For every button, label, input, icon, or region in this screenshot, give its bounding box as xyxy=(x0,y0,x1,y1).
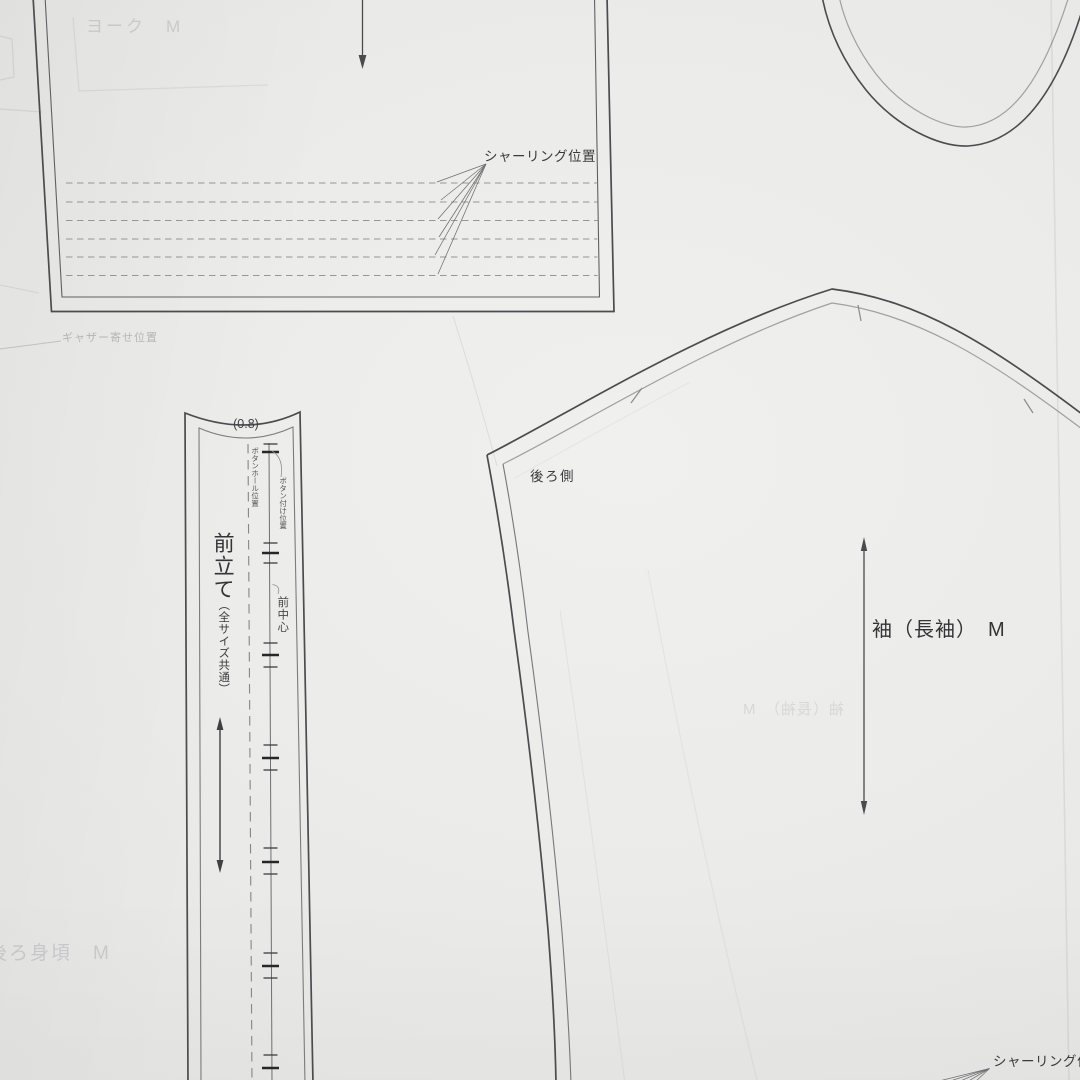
bleed-back-bodice-label: 後ろ身頃 M xyxy=(0,943,111,965)
sleeve-notch-marks xyxy=(631,305,1033,413)
neckline-piece xyxy=(822,0,1080,146)
placket-inner-seam-line xyxy=(199,427,305,1080)
buttonhole-dashed-line xyxy=(248,444,252,1080)
center-front-leader xyxy=(273,585,279,595)
sleeve-cap-inner-seam-line xyxy=(503,303,1080,464)
shirring-dashed-lines xyxy=(66,183,598,276)
neckline-outer-cut-line xyxy=(822,0,1080,146)
button-label-leader xyxy=(272,451,282,477)
shirring-leader-lines-bottom xyxy=(935,1069,990,1080)
pattern-sheet: シャーリング位置 (0.8) 前立て （全サイズ共通） 前中心 ボタンホール位置… xyxy=(0,0,1080,1080)
sleeve-piece-name: 袖（長袖） M xyxy=(872,619,1006,642)
shirring-position-label-top: シャーリング位置 xyxy=(484,149,596,165)
placket-size-note: （全サイズ共通） xyxy=(216,599,229,695)
bleed-mirrored-sleeve-label: 袖（長袖） M xyxy=(742,701,844,718)
center-front-label: 前中心 xyxy=(275,596,288,634)
button-position-line xyxy=(269,443,272,1080)
sleeve-underarm-inner-seam-line xyxy=(503,464,571,1080)
sleeve-cap-outer-cut-line xyxy=(487,289,1080,455)
placket-piece xyxy=(185,412,313,1080)
bleed-gather-position-label: ギャザー寄せ位置 xyxy=(62,332,158,345)
bleed-yoke-label: ヨーク M xyxy=(86,17,183,37)
grainline-arrow-yoke xyxy=(359,0,367,69)
sleeve-back-side-label: 後ろ側 xyxy=(530,469,575,485)
placket-outer-cut-line xyxy=(185,412,313,1080)
gather-label-leader xyxy=(0,341,61,349)
seam-allowance-label: (0.8) xyxy=(226,417,266,431)
grainline-arrow-sleeve xyxy=(861,537,867,815)
sleeve-piece xyxy=(487,289,1080,1080)
shirring-position-label-bottom: シャーリング位置 xyxy=(993,1054,1080,1070)
button-position-label: ボタン付け位置 xyxy=(278,477,287,530)
grainline-arrow-placket xyxy=(217,717,224,873)
placket-piece-name: 前立て xyxy=(210,532,234,601)
paper-crease xyxy=(1051,0,1069,1080)
buttonhole-position-label: ボタンホール位置 xyxy=(250,447,259,507)
